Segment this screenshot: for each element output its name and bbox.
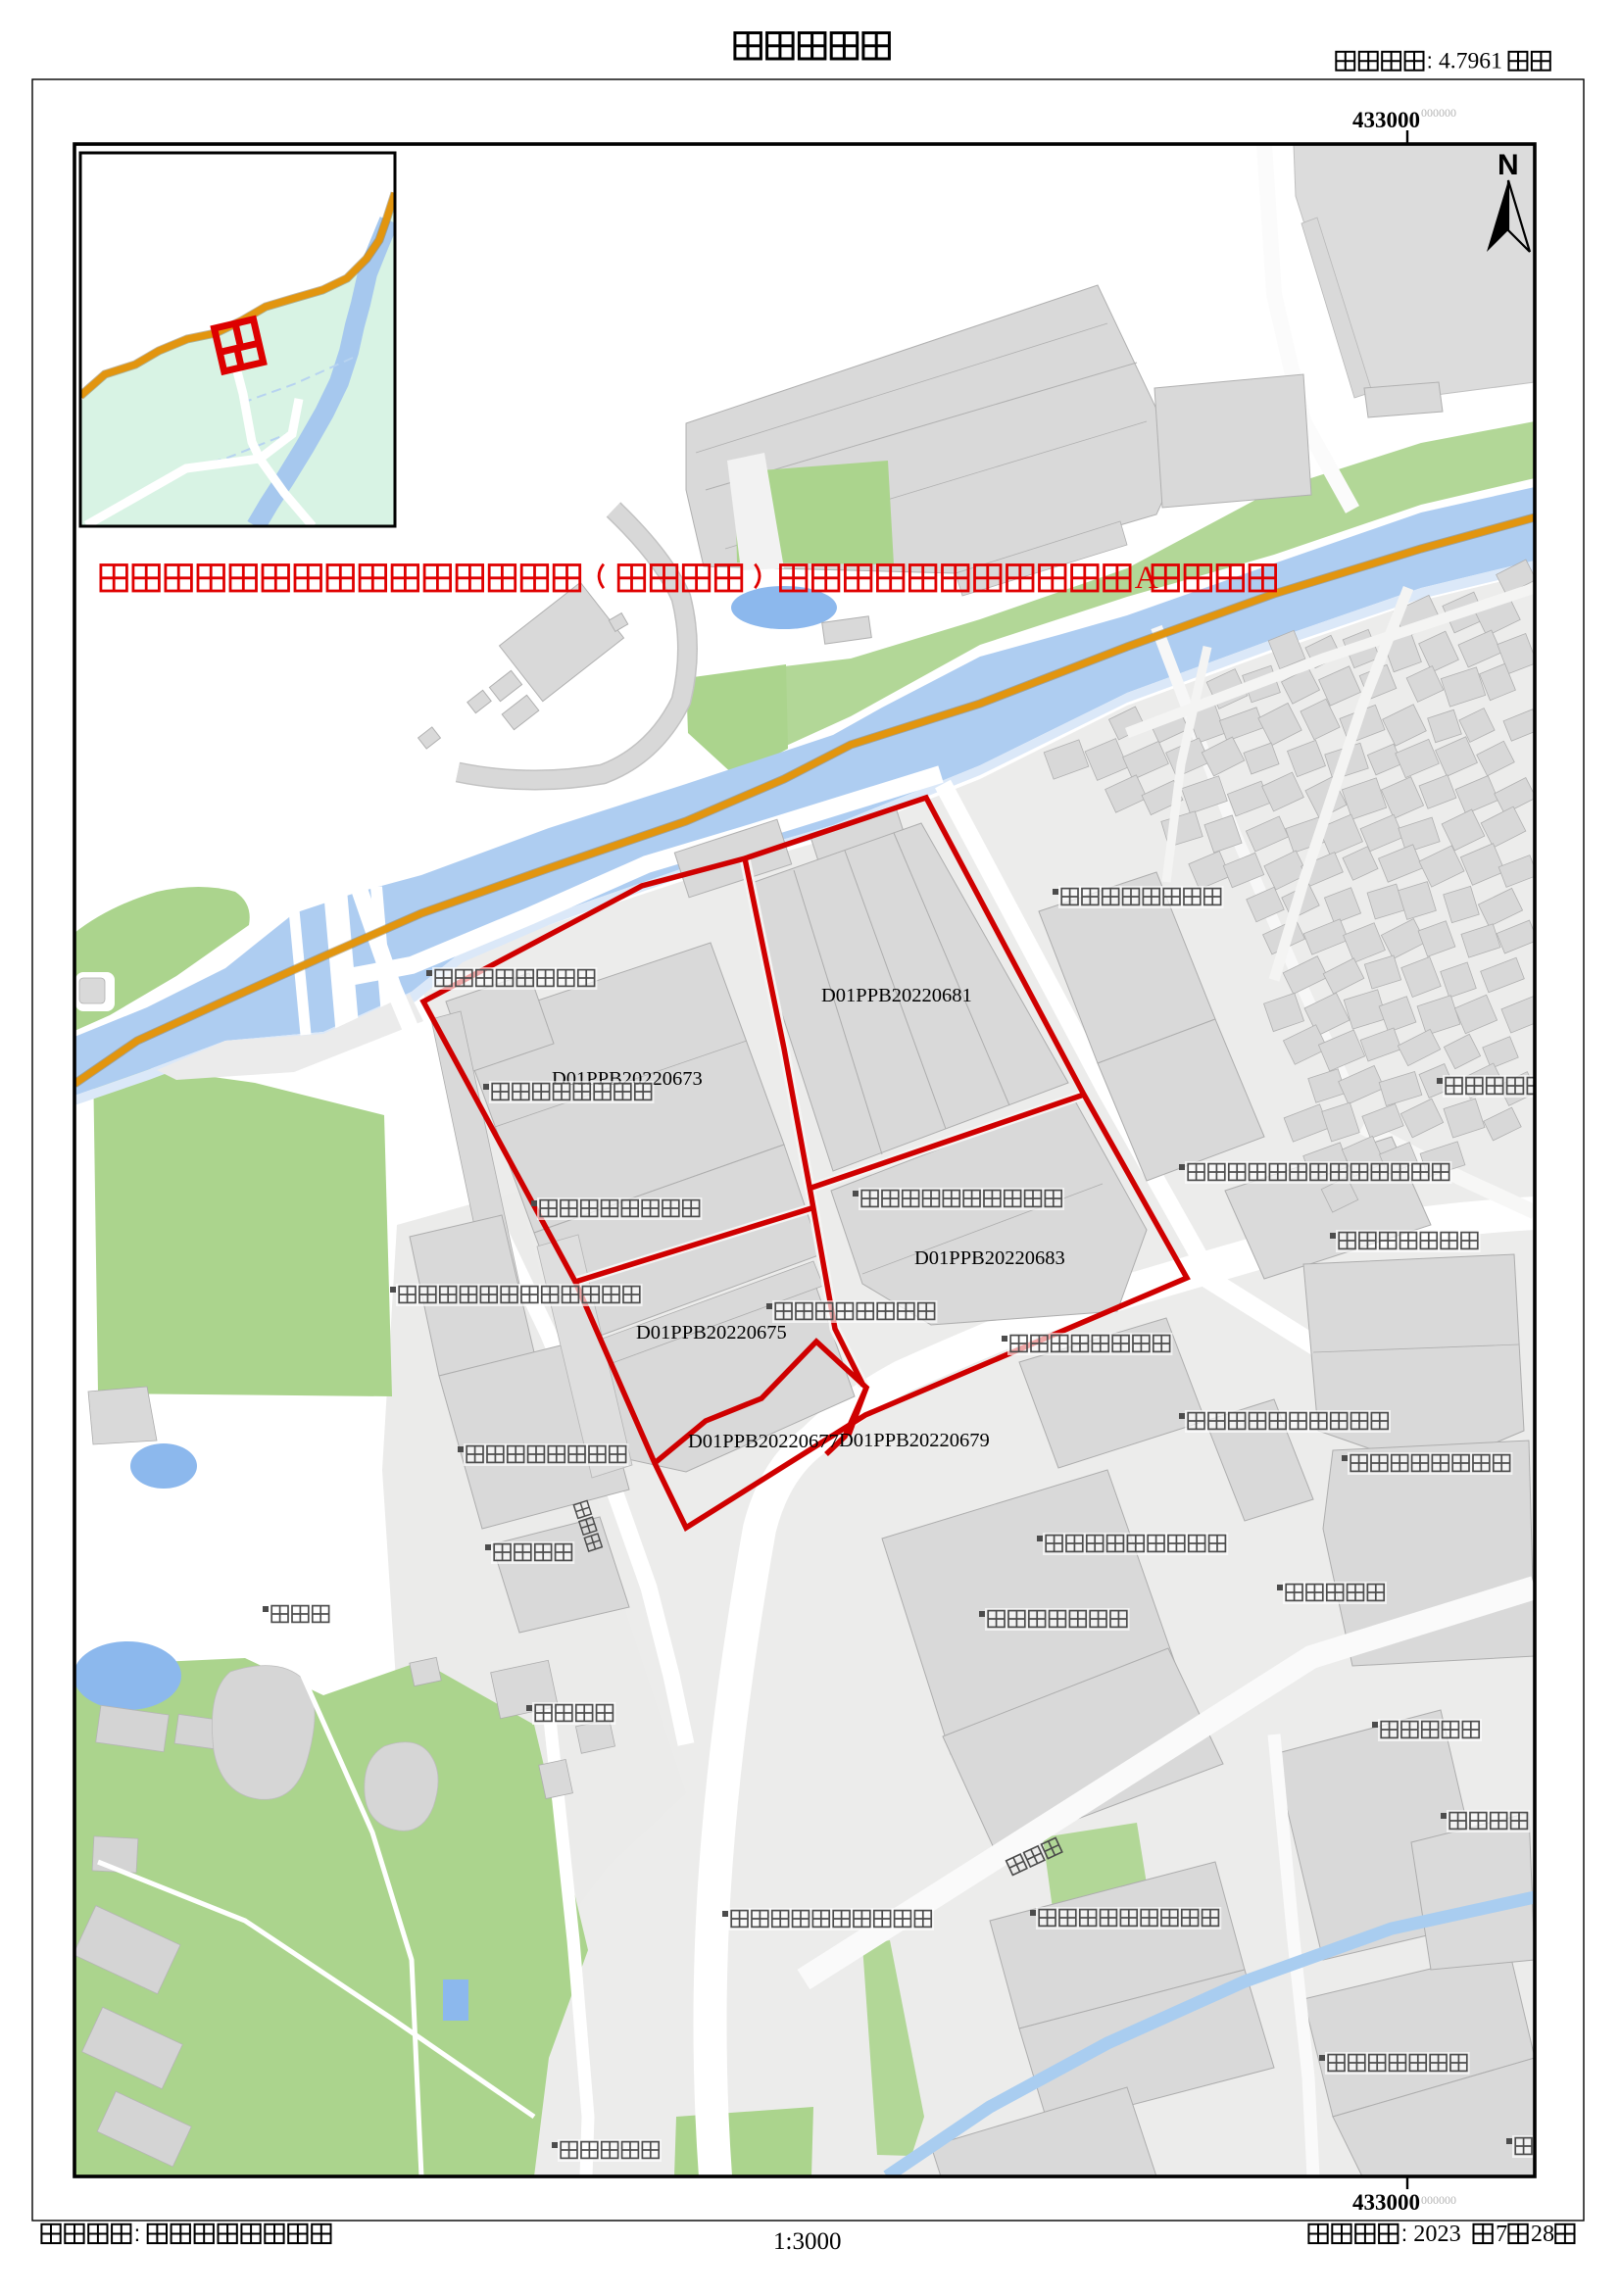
svg-text:1:3000: 1:3000	[773, 2228, 841, 2255]
svg-text::: :	[134, 2221, 140, 2246]
svg-text:4.7961: 4.7961	[1439, 49, 1502, 74]
svg-text:D01PPB20220681: D01PPB20220681	[821, 985, 972, 1006]
svg-text:433000: 433000	[1352, 2190, 1420, 2215]
svg-text:D01PPB20220683: D01PPB20220683	[914, 1247, 1065, 1269]
svg-text:7: 7	[1496, 2221, 1507, 2247]
svg-text::: :	[1401, 2221, 1407, 2246]
svg-text:433000: 433000	[1352, 108, 1420, 132]
svg-text:D01PPB20220679: D01PPB20220679	[839, 1430, 990, 1451]
svg-text:D01PPB20220675: D01PPB20220675	[636, 1322, 787, 1343]
svg-text:28: 28	[1531, 2221, 1554, 2247]
svg-text:D01PPB20220677: D01PPB20220677	[688, 1431, 839, 1452]
svg-text:N: N	[1497, 149, 1519, 181]
svg-text:000000: 000000	[1421, 106, 1456, 120]
svg-text:2023: 2023	[1413, 2221, 1460, 2247]
svg-text:000000: 000000	[1421, 2193, 1456, 2207]
svg-text::: :	[1427, 49, 1433, 73]
